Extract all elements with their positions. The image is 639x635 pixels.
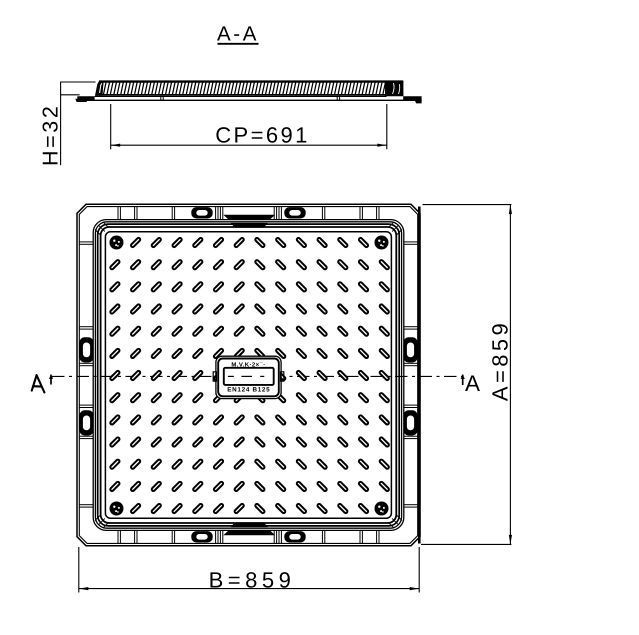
svg-text:A-A: A-A [217,23,259,46]
svg-text:A: A [465,371,480,396]
svg-text:EN124 B125: EN124 B125 [227,386,270,393]
svg-text:CP=691: CP=691 [215,122,310,147]
svg-text:B=859: B=859 [209,567,296,592]
svg-text:A=859: A=859 [487,320,512,401]
svg-text:H=32: H=32 [38,104,62,166]
